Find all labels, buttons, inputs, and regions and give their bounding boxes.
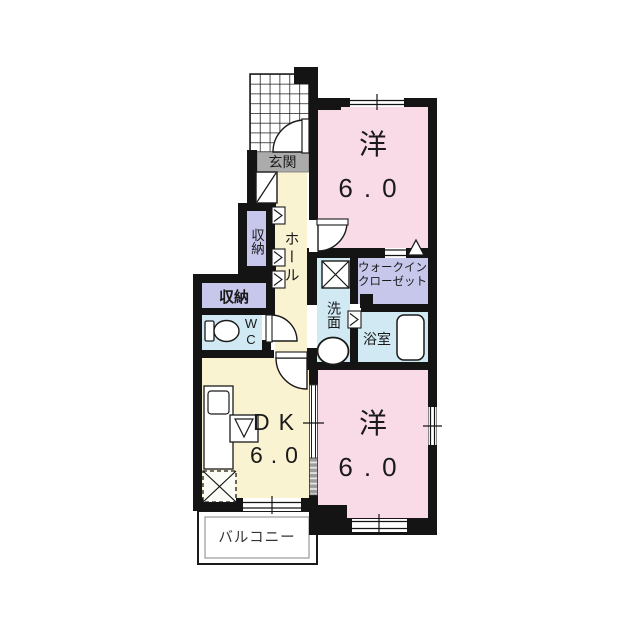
- washroom-doorway: [307, 305, 317, 348]
- western-bottom-name: 洋: [359, 402, 387, 447]
- label-storage-upper: 収納: [246, 215, 266, 267]
- walk-in-closet-line1: ウォークイン: [358, 261, 427, 275]
- label-entrance: 玄関: [257, 153, 308, 171]
- closet-pillar: [360, 294, 373, 308]
- floor-plan: 玄関 ホール 収納 収納 WC 洗面 浴室 ウォークイン クローゼット DK 6…: [0, 0, 640, 640]
- window-bedroom-top-bottom: [385, 248, 406, 258]
- dk-name: DK: [253, 406, 303, 439]
- bathtub-icon: [397, 315, 424, 360]
- label-wc: WC: [241, 312, 261, 352]
- appliance-space-icon: [203, 471, 236, 502]
- shoe-cabinet-icon: [256, 172, 277, 203]
- washer-pan-icon: [322, 261, 349, 288]
- floor-plan-drawing: [0, 0, 640, 640]
- label-western-top: 洋 6.0: [318, 123, 428, 209]
- label-bathroom: 浴室: [356, 330, 398, 348]
- bath-door-icon: [348, 311, 361, 328]
- dk-size: 6.0: [250, 439, 306, 472]
- western-top-name: 洋: [359, 123, 387, 168]
- toilet-icon: [205, 321, 239, 342]
- label-dk: DK 6.0: [232, 406, 324, 473]
- western-bottom-size: 6.0: [338, 447, 407, 489]
- label-balcony: バルコニー: [204, 526, 310, 546]
- walk-in-closet-line2: クローゼット: [358, 275, 427, 289]
- label-western-bottom: 洋 6.0: [318, 402, 428, 488]
- label-washroom: 洗面: [325, 291, 343, 338]
- western-top-size: 6.0: [338, 168, 407, 210]
- label-walk-in-closet: ウォークイン クローゼット: [354, 259, 431, 291]
- label-hall: ホール: [281, 210, 301, 306]
- label-storage-lower: 収納: [202, 286, 266, 306]
- washbasin-icon: [318, 338, 349, 365]
